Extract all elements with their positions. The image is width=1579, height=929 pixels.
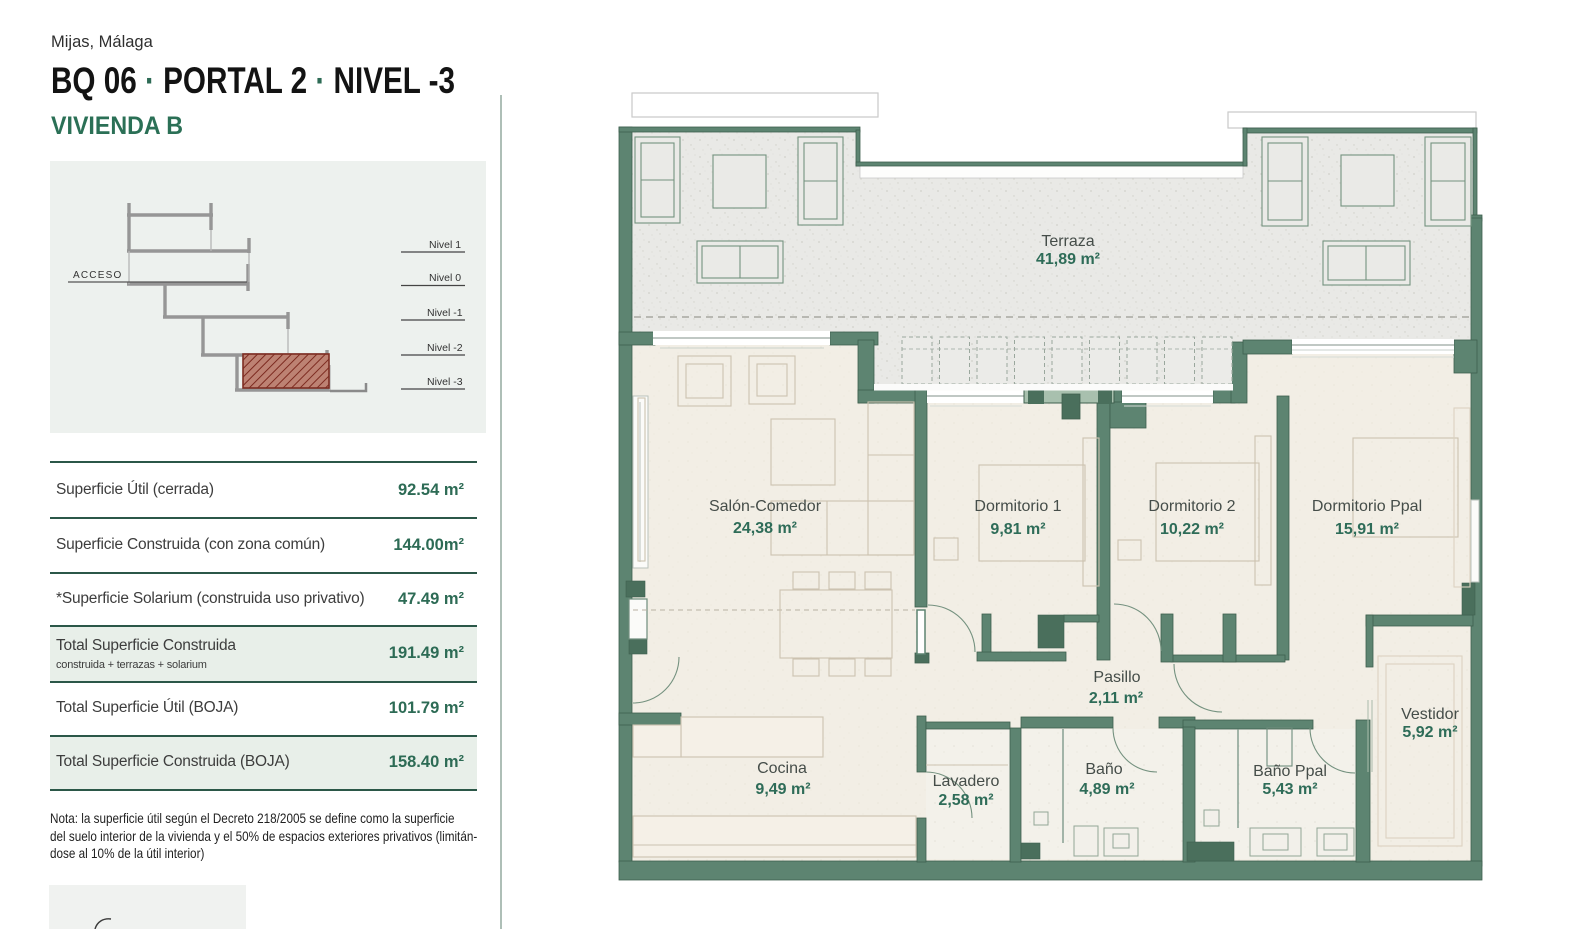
svg-text:Terraza: Terraza bbox=[1041, 233, 1094, 250]
svg-text:4,89 m²: 4,89 m² bbox=[1079, 781, 1134, 798]
svg-text:Nivel -1: Nivel -1 bbox=[427, 307, 463, 319]
svg-text:Pasillo: Pasillo bbox=[1093, 669, 1140, 686]
svg-text:Nivel -2: Nivel -2 bbox=[427, 342, 463, 354]
svg-text:Dormitorio 1: Dormitorio 1 bbox=[974, 498, 1061, 515]
svg-text:Dormitorio 2: Dormitorio 2 bbox=[1148, 498, 1235, 515]
svg-text:Lavadero: Lavadero bbox=[933, 773, 1000, 790]
svg-text:Cocina: Cocina bbox=[757, 760, 807, 777]
svg-text:9,49 m²: 9,49 m² bbox=[755, 781, 810, 798]
svg-text:Baño: Baño bbox=[1085, 761, 1122, 778]
svg-text:Nivel 1: Nivel 1 bbox=[429, 239, 461, 251]
svg-text:2,11 m²: 2,11 m² bbox=[1089, 690, 1143, 707]
svg-text:ACCESO: ACCESO bbox=[73, 270, 122, 281]
svg-text:9,81 m²: 9,81 m² bbox=[990, 521, 1045, 538]
svg-text:Nivel 0: Nivel 0 bbox=[429, 272, 461, 284]
svg-text:Vestidor: Vestidor bbox=[1401, 706, 1459, 723]
svg-text:5,92 m²: 5,92 m² bbox=[1402, 724, 1457, 741]
svg-text:15,91 m²: 15,91 m² bbox=[1335, 521, 1399, 538]
svg-text:Baño Ppal: Baño Ppal bbox=[1253, 763, 1327, 780]
svg-text:Nivel -3: Nivel -3 bbox=[427, 376, 463, 388]
svg-text:2,58 m²: 2,58 m² bbox=[938, 792, 993, 809]
svg-text:Salón-Comedor: Salón-Comedor bbox=[709, 498, 822, 515]
svg-text:Dormitorio Ppal: Dormitorio Ppal bbox=[1312, 498, 1422, 515]
svg-text:41,89 m²: 41,89 m² bbox=[1036, 251, 1100, 268]
svg-text:5,43 m²: 5,43 m² bbox=[1262, 781, 1317, 798]
svg-text:10,22 m²: 10,22 m² bbox=[1160, 521, 1224, 538]
svg-text:24,38 m²: 24,38 m² bbox=[733, 520, 797, 537]
